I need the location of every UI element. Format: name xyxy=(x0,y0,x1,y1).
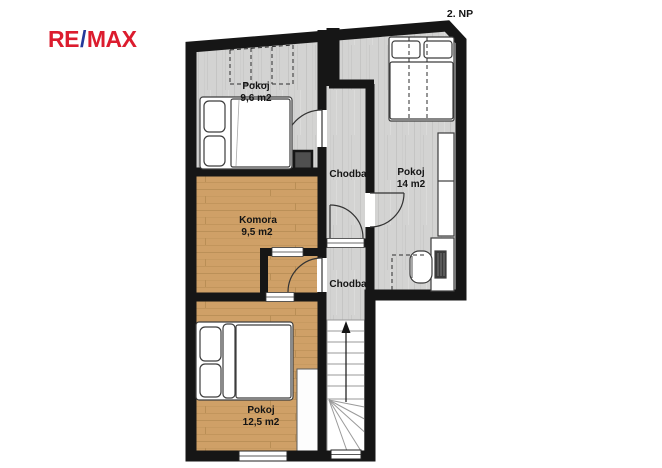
floorplan-canvas: RE/MAX xyxy=(0,0,662,468)
window-bottom-left xyxy=(239,451,287,461)
corridor-passage xyxy=(327,239,364,248)
bed-pokoj125 xyxy=(196,322,293,400)
label-pokoj125-area: 12,5 m2 xyxy=(243,417,280,428)
bed-pokoj96 xyxy=(200,97,292,169)
label-komora-name: Komora xyxy=(239,215,277,226)
floorplan-drawing: Pokoj 9,6 m2 Chodba Pokoj 14 m2 Komora 9… xyxy=(0,0,662,468)
wardrobe xyxy=(438,133,454,236)
floor-level-label: 2. NP xyxy=(447,8,473,20)
label-pokoj14-area: 14 m2 xyxy=(397,179,426,190)
label-pokoj125-name: Pokoj xyxy=(247,405,274,416)
closet-area xyxy=(297,369,318,452)
label-chodba-upper: Chodba xyxy=(329,169,367,180)
vestibule-top-opening xyxy=(272,248,303,257)
vestibule-bottom-opening xyxy=(266,293,294,302)
label-pokoj96-area: 9,6 m2 xyxy=(240,93,272,104)
bed-pokoj14 xyxy=(389,37,454,121)
monitor-icon xyxy=(435,251,446,278)
label-pokoj14-name: Pokoj xyxy=(397,167,424,178)
desk-chair xyxy=(410,251,432,283)
staircase xyxy=(327,320,365,451)
label-chodba-lower: Chodba xyxy=(329,279,367,290)
window-bottom-stairs xyxy=(331,450,361,459)
door-opening-pokoj14 xyxy=(365,193,375,227)
label-pokoj96-name: Pokoj xyxy=(242,81,269,92)
label-komora-area: 9,5 m2 xyxy=(241,227,273,238)
chimney xyxy=(294,151,312,169)
